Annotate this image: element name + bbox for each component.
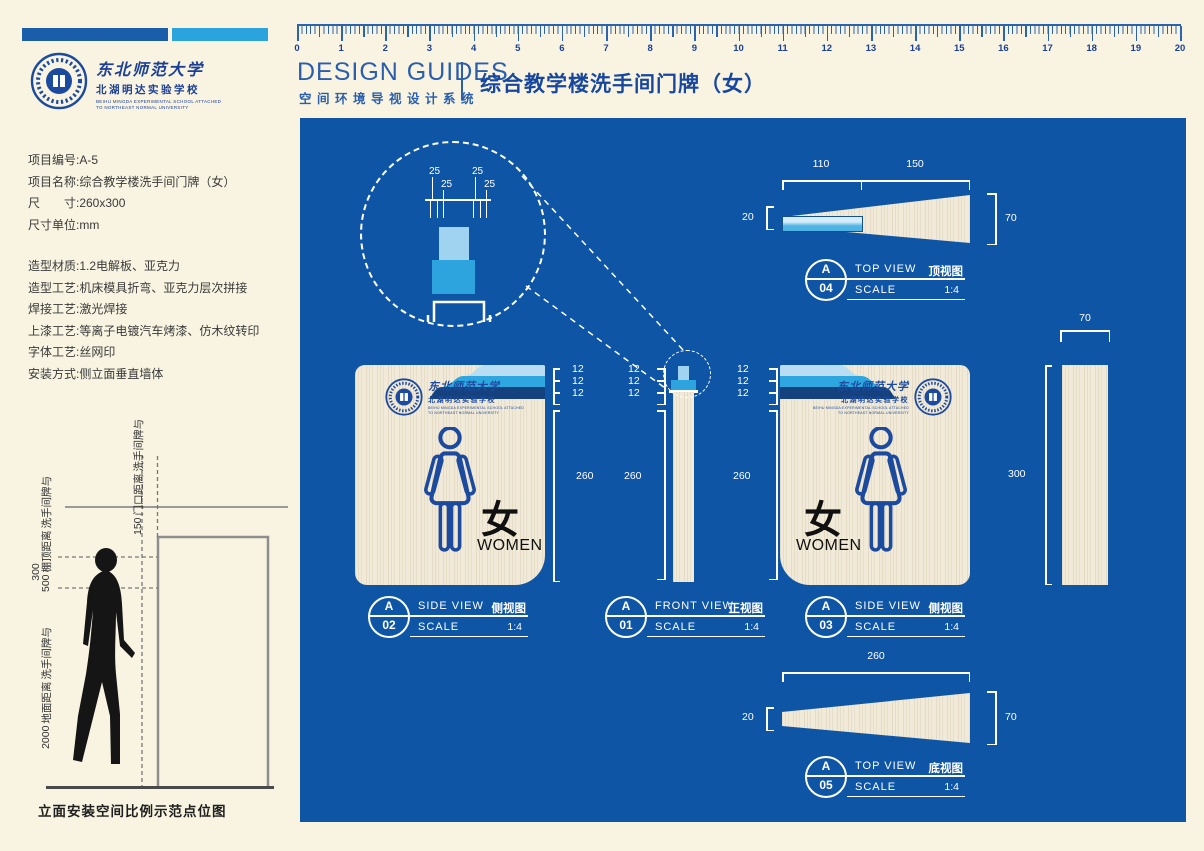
- detail-cap-light-layer: [439, 227, 469, 260]
- dim-a04-seg1: 110: [801, 158, 841, 170]
- human-silhouette: [73, 548, 135, 764]
- dim-layer: 12: [628, 387, 640, 399]
- ruler-tick: [1025, 26, 1026, 37]
- craft-info-line: 造型材质:1.2电解板、亚克力: [28, 256, 293, 278]
- installation-elevation-diagram: 150 门口距离 洗手间牌与 500 棚顶距离 洗手间牌与 300 2000 地…: [0, 420, 300, 830]
- school-seal-logo: [914, 378, 952, 416]
- project-info-line: 项目编号:A-5: [28, 150, 293, 172]
- ruler-unit-label: 19: [1126, 43, 1146, 54]
- ruler-unit-label: 16: [993, 43, 1013, 54]
- craft-info-line: 字体工艺:丝网印: [28, 342, 293, 364]
- detail-zoom-circle: 25 25 25 25: [360, 141, 546, 327]
- school-name-en-line2: TO NORTHEAST NORMAL UNIVERSITY: [96, 105, 221, 111]
- scale-value: 1:4: [507, 621, 522, 633]
- ruler-unit-label: 7: [596, 43, 616, 54]
- view-name-cn: 底视图: [929, 760, 964, 776]
- dim-value: 2000: [40, 726, 52, 749]
- ruler-tick: [496, 26, 497, 37]
- dim-layer: 12: [572, 387, 584, 399]
- ruler-tick: [562, 26, 564, 41]
- detail-dim: 25: [484, 179, 495, 190]
- dim-a05-left: 20: [742, 711, 754, 723]
- design-system-subtitle: 空间环境导视设计系统: [299, 88, 479, 107]
- craft-info-line: 造型工艺:机床模具折弯、亚克力层次拼接: [28, 278, 293, 300]
- view-name-en: SIDE VIEW: [855, 600, 921, 612]
- ruler-tick: [1180, 26, 1182, 41]
- dim-line: [782, 672, 970, 674]
- dim-height: 260: [733, 470, 751, 482]
- university-name: 东北师范大学: [96, 56, 221, 80]
- ruler-tick: [363, 26, 364, 37]
- view-name-en: TOP VIEW: [855, 263, 916, 275]
- ruler-unit-label: 6: [552, 43, 572, 54]
- dim-layer: 12: [628, 375, 640, 387]
- view-name-cn: 侧视图: [929, 600, 964, 616]
- sign-logo: 东北师范大学 北湖明达实验学校 BEIHU MINGDA EXPERIMENTA…: [813, 378, 952, 416]
- project-info-line: 项目名称:综合教学楼洗手间门牌（女）: [28, 172, 293, 194]
- ruler-tick: [319, 26, 320, 37]
- view-name-cn: 侧视图: [492, 600, 527, 616]
- ruler-tick: [849, 26, 850, 37]
- dim-layer: 12: [572, 375, 584, 387]
- ruler-unit-label: 9: [684, 43, 704, 54]
- view-code-letter: A: [805, 759, 847, 773]
- sign-word-women: WOMEN: [477, 537, 543, 555]
- school-logo-text: 东北师范大学 北湖明达实验学校 BEIHU MINGDA EXPERIMENTA…: [96, 56, 221, 111]
- view-code-number: 03: [805, 618, 847, 632]
- dim-sidepanel-top: 70: [1060, 312, 1110, 324]
- school-seal-logo: [385, 378, 423, 416]
- front-view-strip: [673, 392, 694, 582]
- ruler-unit-label: 14: [905, 43, 925, 54]
- ruler-tick: [1003, 26, 1005, 41]
- ruler-tick: [716, 26, 717, 37]
- elevation-caption: 立面安装空间比例示范点位图: [38, 800, 227, 820]
- school-name-en: BEIHU MINGDA EXPERIMENTAL SCHOOL ATTACHE…: [428, 406, 524, 415]
- school-name: 北湖明达实验学校: [96, 82, 221, 97]
- sign-logo: 东北师范大学 北湖明达实验学校 BEIHU MINGDA EXPERIMENTA…: [385, 378, 524, 416]
- ruler-tick: [959, 26, 961, 41]
- scale-label: SCALE: [418, 621, 459, 633]
- sign-character-female: 女: [481, 489, 519, 544]
- detail-dim-line: [425, 199, 491, 201]
- ruler-tick: [1070, 26, 1071, 37]
- ruler-tick: [915, 26, 917, 41]
- dim-a04-seg2: 150: [895, 158, 935, 170]
- ruler-tick: [650, 26, 652, 41]
- ruler-tick: [540, 26, 541, 37]
- design-guides-title: DESIGN GUIDES: [297, 58, 509, 87]
- view-name-en: FRONT VIEW: [655, 600, 734, 612]
- brand-bar-dark: [22, 28, 168, 41]
- ruler-tick: [518, 26, 520, 41]
- ruler-tick: [407, 26, 408, 37]
- ruler-tick: [628, 26, 629, 37]
- dim-text: 洗手间牌与: [39, 627, 54, 680]
- dim-value: 150: [132, 517, 144, 535]
- ruler-tick: [981, 26, 982, 37]
- craft-info-block: 造型材质:1.2电解板、亚克力 造型工艺:机床模具折弯、亚克力层次拼接 焊接工艺…: [28, 256, 293, 385]
- ruler-tick: [385, 26, 387, 41]
- view-code-letter: A: [805, 262, 847, 276]
- dim-sign-height: 300: [30, 555, 42, 589]
- university-name: 东北师范大学: [813, 378, 909, 394]
- dim-a05-right: 70: [1005, 711, 1017, 723]
- ruler-tick: [1158, 26, 1159, 37]
- scale-value: 1:4: [944, 284, 959, 296]
- scale-label: SCALE: [855, 621, 896, 633]
- ruler-unit-label: 12: [817, 43, 837, 54]
- view-label-a05: A 05 TOP VIEW 底视图 SCALE 1:4: [805, 755, 965, 799]
- view-code-letter: A: [805, 599, 847, 613]
- drawing-panel: 25 25 25 25 110 150 20: [300, 118, 1186, 822]
- sign-character-female: 女: [804, 489, 842, 544]
- ruler-tick: [893, 26, 894, 37]
- ruler-tick: [871, 26, 873, 41]
- dim-text: 地面距离: [39, 682, 54, 724]
- ruler-tick: [694, 26, 696, 41]
- detail-dim: 25: [472, 166, 483, 177]
- ruler-unit-label: 18: [1082, 43, 1102, 54]
- view-code-number: 05: [805, 778, 847, 792]
- scale-value: 1:4: [744, 621, 759, 633]
- dim-text: 门口距离: [131, 473, 146, 515]
- dim-a05-top: 260: [856, 650, 896, 662]
- university-name: 东北师范大学: [428, 378, 524, 394]
- ruler-unit-label: 8: [640, 43, 660, 54]
- ruler-unit-label: 20: [1170, 43, 1190, 54]
- school-logo-block: 东北师范大学 北湖明达实验学校 BEIHU MINGDA EXPERIMENTA…: [30, 52, 280, 114]
- ruler-unit-label: 2: [375, 43, 395, 54]
- ruler-tick: [1092, 26, 1094, 41]
- restroom-sign-side-view-left: 东北师范大学 北湖明达实验学校 BEIHU MINGDA EXPERIMENTA…: [355, 365, 545, 585]
- view-label-a03: A 03 SIDE VIEW 侧视图 SCALE 1:4: [805, 595, 965, 639]
- detail-dim: 25: [429, 166, 440, 177]
- scale-label: SCALE: [655, 621, 696, 633]
- craft-info-line: 焊接工艺:激光焊接: [28, 299, 293, 321]
- ruler-unit-label: 15: [949, 43, 969, 54]
- dim-sign-to-door: 150 门口距离 洗手间牌与: [118, 439, 158, 515]
- ruler-tick: [805, 26, 806, 37]
- project-info-line: 尺 寸:260x300: [28, 193, 293, 215]
- ruler-unit-label: 17: [1038, 43, 1058, 54]
- top-view-acrylic-strip: [782, 216, 863, 232]
- dim-text: 洗手间牌与: [39, 476, 54, 529]
- dim-height: 260: [624, 470, 642, 482]
- dim-layer: 12: [737, 375, 749, 387]
- ruler-tick: [827, 26, 829, 41]
- side-edge-panel: [1062, 365, 1108, 585]
- detail-target-circle: [663, 350, 711, 398]
- ruler-tick: [1048, 26, 1050, 41]
- school-seal-logo: [30, 52, 88, 110]
- view-code-number: 04: [805, 281, 847, 295]
- view-code-letter: A: [368, 599, 410, 613]
- dim-a04-left: 20: [742, 211, 754, 223]
- ruler-unit-label: 13: [861, 43, 881, 54]
- page-title: 综合教学楼洗手间门牌（女）: [480, 68, 766, 98]
- school-name: 北湖明达实验学校: [428, 395, 524, 405]
- dim-sign-to-floor: 2000 地面距离 洗手间牌与: [26, 653, 66, 723]
- scale-label: SCALE: [855, 781, 896, 793]
- ruler-tick: [452, 26, 453, 37]
- view-code-letter: A: [605, 599, 647, 613]
- ruler-tick: [606, 26, 608, 41]
- dim-layer: 12: [737, 363, 749, 375]
- header-divider: [461, 62, 463, 100]
- detail-mount-bracket: [426, 294, 492, 324]
- detail-dim: 25: [441, 179, 452, 190]
- dim-line: [782, 180, 970, 182]
- dim-text: 洗手间牌与: [131, 419, 146, 472]
- view-name-en: TOP VIEW: [855, 760, 916, 772]
- craft-info-line: 上漆工艺:等离子电镀汽车烤漆、仿木纹转印: [28, 321, 293, 343]
- ruler-tick: [584, 26, 585, 37]
- ruler-tick: [341, 26, 343, 41]
- ruler-unit-label: 4: [464, 43, 484, 54]
- ruler: 01234567891011121314151617181920: [297, 24, 1181, 56]
- school-name-en: BEIHU MINGDA EXPERIMENTAL SCHOOL ATTACHE…: [813, 406, 909, 415]
- ruler-tick: [761, 26, 762, 37]
- dim-height: 260: [576, 470, 594, 482]
- bottom-view-wedge: [782, 693, 970, 743]
- ruler-tick: [297, 26, 299, 41]
- ruler-tick: [1136, 26, 1138, 41]
- dim-layer: 12: [572, 363, 584, 375]
- scale-value: 1:4: [944, 781, 959, 793]
- craft-info-line: 安装方式:侧立面垂直墙体: [28, 364, 293, 386]
- view-code-number: 01: [605, 618, 647, 632]
- scale-value: 1:4: [944, 621, 959, 633]
- sign-word-women: WOMEN: [796, 537, 862, 555]
- top-view-wedge: [782, 195, 970, 243]
- brand-bar-light: [172, 28, 268, 41]
- detail-cap-mid-layer: [432, 260, 475, 294]
- woman-pictogram: [417, 427, 483, 557]
- project-info-block: 项目编号:A-5 项目名称:综合教学楼洗手间门牌（女） 尺 寸:260x300 …: [28, 150, 293, 236]
- dim-a04-right: 70: [1005, 212, 1017, 224]
- ruler-tick: [739, 26, 741, 41]
- view-label-a04: A 04 TOP VIEW 顶视图 SCALE 1:4: [805, 258, 965, 302]
- view-label-a02: A 02 SIDE VIEW 侧视图 SCALE 1:4: [368, 595, 528, 639]
- ruler-tick: [474, 26, 476, 41]
- ruler-tick: [1114, 26, 1115, 37]
- view-name-en: SIDE VIEW: [418, 600, 484, 612]
- design-guide-page: 东北师范大学 北湖明达实验学校 BEIHU MINGDA EXPERIMENTA…: [0, 0, 1204, 851]
- dim-sidepanel-height: 300: [1008, 468, 1026, 480]
- restroom-sign-side-view-right: 东北师范大学 北湖明达实验学校 BEIHU MINGDA EXPERIMENTA…: [780, 365, 970, 585]
- ruler-tick: [672, 26, 673, 37]
- ruler-unit-label: 11: [773, 43, 793, 54]
- school-name: 北湖明达实验学校: [813, 395, 909, 405]
- ruler-unit-label: 10: [729, 43, 749, 54]
- ruler-tick: [937, 26, 938, 37]
- view-label-a01: A 01 FRONT VIEW 正视图 SCALE 1:4: [605, 595, 765, 639]
- ruler-tick: [783, 26, 785, 41]
- ruler-tick: [429, 26, 431, 41]
- dim-layer: 12: [737, 387, 749, 399]
- ruler-unit-label: 1: [331, 43, 351, 54]
- dim-value: 300: [30, 563, 42, 581]
- scale-label: SCALE: [855, 284, 896, 296]
- view-name-cn: 顶视图: [929, 263, 964, 279]
- ruler-unit-label: 0: [287, 43, 307, 54]
- view-name-cn: 正视图: [729, 600, 764, 616]
- view-code-number: 02: [368, 618, 410, 632]
- ruler-unit-label: 5: [508, 43, 528, 54]
- ruler-unit-label: 3: [419, 43, 439, 54]
- project-info-line: 尺寸单位:mm: [28, 215, 293, 237]
- dim-layer: 12: [628, 363, 640, 375]
